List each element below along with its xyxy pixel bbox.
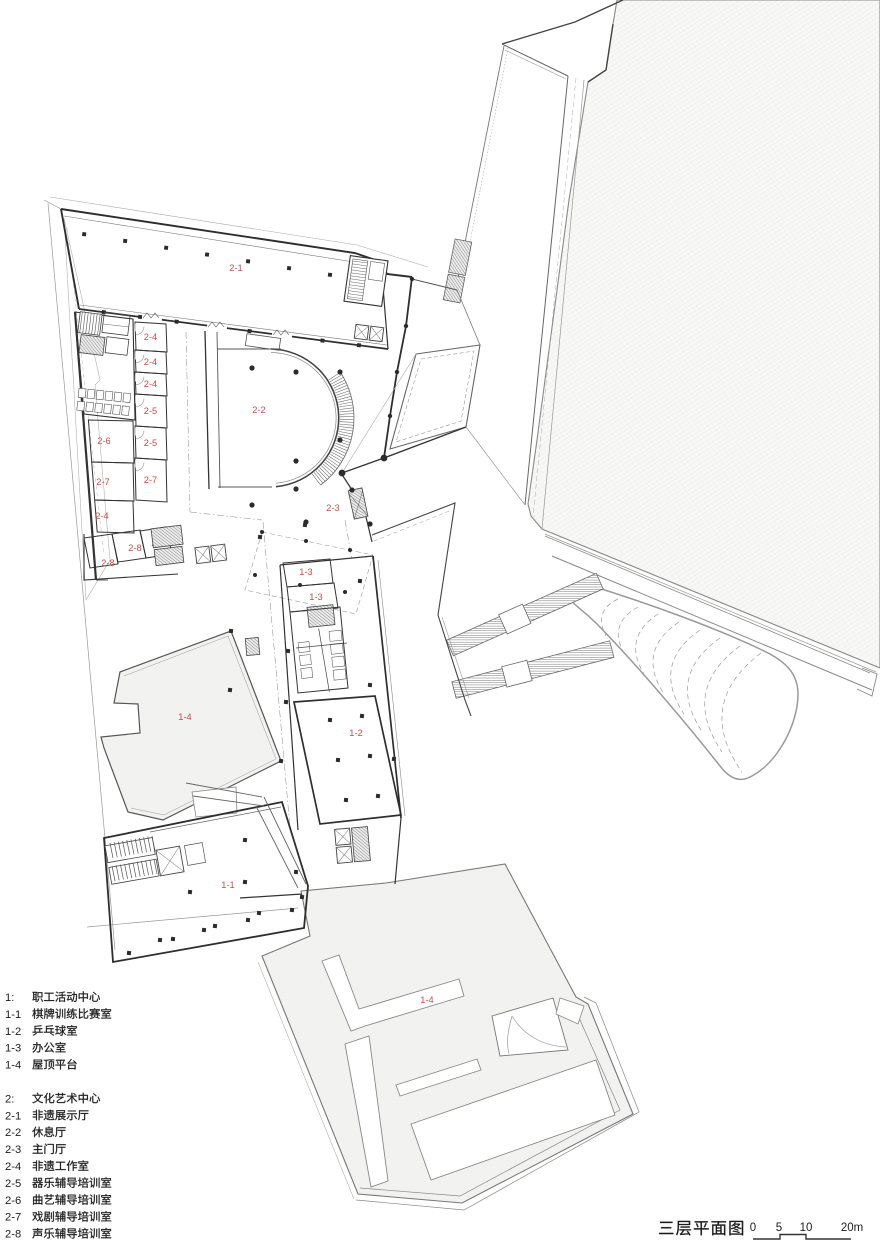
svg-text:2-5: 2-5 [144, 438, 157, 448]
svg-text:2-8: 2-8 [5, 1229, 21, 1241]
svg-text:2-7: 2-7 [5, 1212, 21, 1224]
svg-text:1-1: 1-1 [5, 1009, 21, 1021]
svg-text:2-4: 2-4 [95, 511, 108, 521]
svg-text:2-3: 2-3 [326, 503, 339, 513]
svg-text:2-6: 2-6 [5, 1195, 21, 1207]
svg-text:1:: 1: [5, 992, 14, 1004]
svg-text:10: 10 [800, 1222, 813, 1234]
svg-text:1-3: 1-3 [299, 567, 312, 577]
svg-text:2-5: 2-5 [5, 1178, 21, 1190]
svg-text:2-2: 2-2 [5, 1127, 21, 1139]
svg-text:2-4: 2-4 [5, 1161, 21, 1173]
svg-text:20m: 20m [841, 1222, 863, 1234]
svg-text:0: 0 [750, 1222, 756, 1234]
svg-text:2-8: 2-8 [101, 558, 114, 568]
svg-text:1-4: 1-4 [178, 712, 191, 722]
svg-text:1-3: 1-3 [5, 1043, 21, 1055]
svg-text:2-4: 2-4 [144, 332, 157, 342]
svg-text:2:: 2: [5, 1093, 14, 1105]
svg-text:2-1: 2-1 [5, 1110, 21, 1122]
svg-text:1-4: 1-4 [5, 1060, 21, 1072]
svg-text:2-6: 2-6 [97, 436, 110, 446]
svg-text:2-5: 2-5 [144, 406, 157, 416]
svg-text:1-4: 1-4 [420, 995, 433, 1005]
svg-text:2-1: 2-1 [229, 263, 242, 273]
svg-text:1-3: 1-3 [309, 592, 322, 602]
svg-text:2-3: 2-3 [5, 1144, 21, 1156]
svg-text:2-4: 2-4 [144, 379, 157, 389]
svg-text:5: 5 [776, 1222, 782, 1234]
svg-text:2-2: 2-2 [252, 405, 265, 415]
svg-text:1-2: 1-2 [5, 1026, 21, 1038]
svg-text:2-7: 2-7 [144, 475, 157, 485]
svg-text:2-8: 2-8 [128, 543, 141, 553]
svg-text:1-2: 1-2 [349, 728, 362, 738]
svg-text:1-1: 1-1 [221, 880, 234, 890]
svg-text:2-7: 2-7 [96, 477, 109, 487]
svg-text:2-4: 2-4 [144, 357, 157, 367]
